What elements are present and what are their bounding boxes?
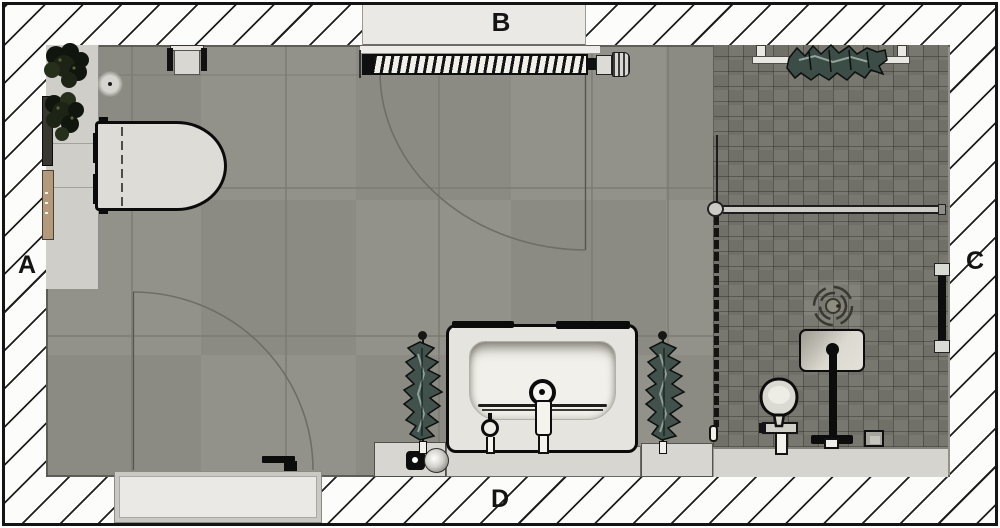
towel-rail-post [659, 441, 667, 454]
toilet [95, 121, 227, 211]
paper-holder-bracket [167, 48, 173, 71]
toilet-bolt [99, 208, 108, 214]
hand-shower-icon [753, 376, 805, 456]
radiator-valve [596, 55, 612, 75]
toilet-mount [93, 174, 98, 204]
soap-dish-dot [412, 457, 418, 463]
towel-rail-knob [658, 331, 667, 340]
towel-icon [400, 340, 446, 442]
radiator-endcap [362, 54, 372, 75]
glass-partition-handle [709, 425, 718, 442]
bathroom-floor-plan: A B C D [0, 0, 1000, 528]
grab-bar-bracket [934, 340, 950, 353]
faucet-stem [538, 436, 549, 454]
shower-drain-inner [870, 436, 880, 444]
window-sill [360, 46, 600, 54]
radiator-pipe [359, 50, 361, 78]
entry-door [114, 471, 322, 523]
toilet-paper-holder [167, 45, 207, 78]
towel-ring [481, 419, 499, 437]
soap-dispenser [424, 448, 449, 473]
floor-drain-dot [108, 82, 112, 86]
grab-bar-bracket [934, 263, 950, 276]
glass-partition [714, 216, 719, 427]
shower-bench [713, 447, 948, 477]
towel-icon [642, 340, 688, 442]
toilet-bolt [99, 117, 108, 123]
elevation-label-d: D [484, 484, 516, 516]
vanity-counter-right [641, 443, 713, 477]
entry-door-leaf [119, 476, 317, 518]
toilet-hinge-line [121, 127, 123, 206]
toilet-mount [93, 133, 98, 163]
elevation-label-c: C [958, 246, 992, 278]
washbasin-top-trim [452, 321, 514, 328]
towel-rail-knob [418, 331, 427, 340]
shower-column-footplate [824, 438, 839, 449]
towel-ring-stem [486, 437, 495, 454]
shower-column [829, 352, 837, 438]
radiator-connector [588, 58, 596, 70]
elevation-label-b: B [485, 7, 517, 39]
wall-shelf-wood [42, 170, 54, 240]
radiator-thermostat-knob [612, 52, 630, 77]
paper-roll [174, 50, 200, 75]
radiator [372, 54, 588, 75]
elevation-label-a: A [10, 250, 44, 282]
paper-holder-bracket [201, 48, 207, 71]
basin-drain-dot [539, 389, 545, 395]
glass-door-bar [723, 205, 943, 214]
faucet [535, 400, 552, 436]
glass-partition-top [716, 135, 718, 203]
glass-joint-knob [707, 201, 724, 217]
rain-shower-head-icon [806, 281, 862, 331]
towel-rail-post [419, 441, 427, 454]
towels-icon [785, 40, 891, 84]
window-opening-b [362, 5, 586, 46]
glass-bar-endcap [938, 204, 946, 215]
washbasin-top-trim [556, 321, 630, 329]
shelf-bracket-marks [45, 192, 48, 222]
